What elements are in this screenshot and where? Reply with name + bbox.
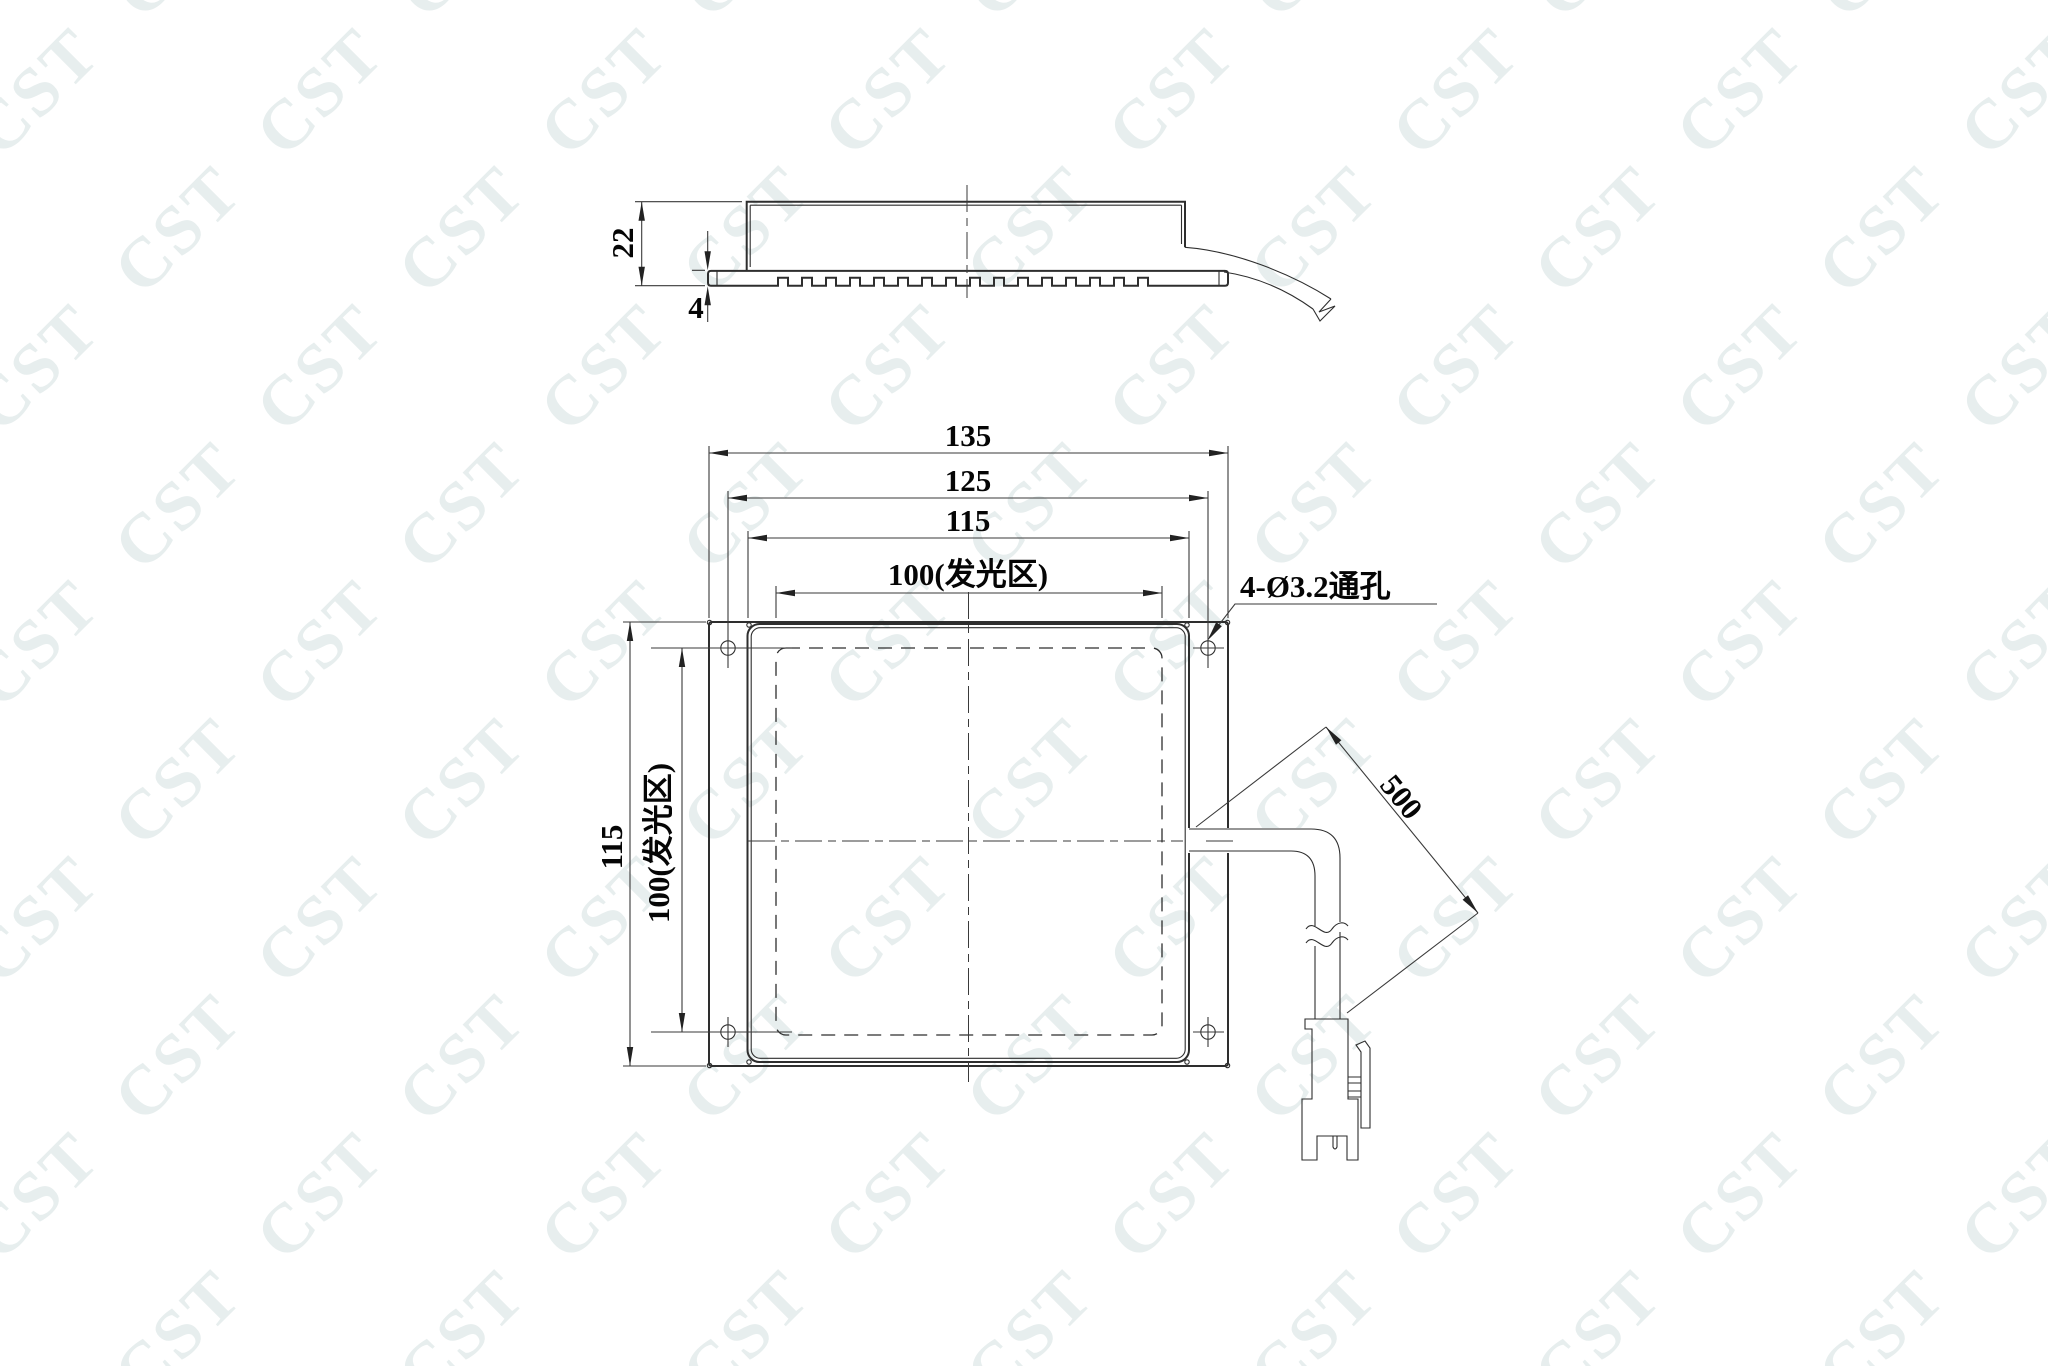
watermark-text: CST xyxy=(1662,566,1819,723)
watermark-text: CST xyxy=(1804,1256,1961,1366)
watermark-text: CST xyxy=(384,980,541,1137)
watermark-text: CST xyxy=(810,842,967,999)
watermark-text: CST xyxy=(384,0,541,33)
watermark-text: CST xyxy=(668,0,825,33)
watermark-text: CST xyxy=(242,842,399,999)
watermark-text: CST xyxy=(1378,14,1535,171)
dim-emitting-height-value: 100(发光区) xyxy=(641,763,676,923)
watermark-text: CST xyxy=(1236,428,1393,585)
watermark-text: CST xyxy=(1236,0,1393,33)
watermark-text: CST xyxy=(952,1256,1109,1366)
watermark-text: CST xyxy=(668,1256,825,1366)
watermark-text: CST xyxy=(100,980,257,1137)
watermark-text: CST xyxy=(0,14,115,171)
watermark-text: CST xyxy=(1662,842,1819,999)
connector-pin xyxy=(1333,1136,1337,1149)
watermark-text: CST xyxy=(0,290,115,447)
watermark-text: CST xyxy=(384,704,541,861)
cable-opening xyxy=(1186,828,1316,853)
watermark-text: CST xyxy=(100,1256,257,1366)
watermark-text: CST xyxy=(1236,1256,1393,1366)
watermark-text: CST xyxy=(384,1256,541,1366)
dim-panel-width-value: 115 xyxy=(946,503,991,538)
watermark-text: CST xyxy=(242,566,399,723)
watermark-text: CST xyxy=(1662,290,1819,447)
watermark-text: CST xyxy=(1520,152,1677,309)
watermark-text: CST xyxy=(242,290,399,447)
watermark-text: CST xyxy=(1378,1118,1535,1275)
watermark-text: CST xyxy=(1804,704,1961,861)
watermark-text: CST xyxy=(952,704,1109,861)
watermark-text: CST xyxy=(100,0,257,33)
watermark-text: CST xyxy=(1520,704,1677,861)
watermark-text: CST xyxy=(1804,152,1961,309)
watermark-text: CST xyxy=(526,290,683,447)
watermark-text: CST xyxy=(1946,14,2048,171)
watermark-text: CST xyxy=(1520,980,1677,1137)
watermark-text: CST xyxy=(952,0,1109,33)
dim-hole-spacing-value: 125 xyxy=(945,463,992,498)
watermark-text: CST xyxy=(100,428,257,585)
watermark-text: CST xyxy=(526,566,683,723)
dim-overall-height-value: 115 xyxy=(594,825,629,870)
dim-emitting-width-value: 100(发光区) xyxy=(888,557,1048,592)
watermark-text: CST xyxy=(100,704,257,861)
watermark-text: CST xyxy=(1236,152,1393,309)
watermark-text: CST xyxy=(1520,0,1677,33)
dim-overall-width-value: 135 xyxy=(945,418,992,453)
watermark-text: CST xyxy=(0,842,115,999)
watermark-text: CST xyxy=(1378,842,1535,999)
watermark-text: CST xyxy=(384,428,541,585)
dim-emitting-width: 100(发光区) xyxy=(776,557,1162,596)
technical-drawing: CSTCSTCSTCSTCSTCSTCSTCSTCSTCSTCSTCSTCSTC… xyxy=(0,0,2048,1366)
holes-label: 4-Ø3.2通孔 xyxy=(1240,569,1391,604)
watermark-text: CST xyxy=(1236,980,1393,1137)
dim-panel-width: 115 xyxy=(748,503,1189,541)
watermark-text: CST xyxy=(1804,980,1961,1137)
watermark-text: CST xyxy=(1520,1256,1677,1366)
watermark-text: CST xyxy=(526,14,683,171)
watermark-text: CST xyxy=(1946,1118,2048,1275)
watermark-text: CST xyxy=(242,14,399,171)
watermark-text: CST xyxy=(1520,428,1677,585)
watermark-text: CST xyxy=(1946,566,2048,723)
watermark-text: CST xyxy=(1804,428,1961,585)
watermark-text: CST xyxy=(0,566,115,723)
watermark-text: CST xyxy=(1662,14,1819,171)
watermark-text: CST xyxy=(810,14,967,171)
watermark-text: CST xyxy=(810,1118,967,1275)
dim-base-thickness-value: 4 xyxy=(688,290,704,325)
watermark-text: CST xyxy=(1804,0,1961,33)
watermark-text: CST xyxy=(1094,1118,1251,1275)
technical-drawing-page: CSTCSTCSTCSTCSTCSTCSTCSTCSTCSTCSTCSTCSTC… xyxy=(0,0,2048,1366)
watermark-text: CST xyxy=(242,1118,399,1275)
watermark-text: CST xyxy=(1946,290,2048,447)
watermark-text: CST xyxy=(526,1118,683,1275)
side-flange-outline xyxy=(708,271,1228,286)
watermark-text: CST xyxy=(810,290,967,447)
watermark-text: CST xyxy=(1946,842,2048,999)
watermark-text: CST xyxy=(1378,290,1535,447)
watermark-text: CST xyxy=(1662,1118,1819,1275)
dim-cable-length-value: 500 xyxy=(1373,768,1430,826)
holes-callout: 4-Ø3.2通孔 xyxy=(1208,569,1438,641)
watermark-text: CST xyxy=(668,704,825,861)
watermark-text: CST xyxy=(1378,566,1535,723)
dim-side-height-value: 22 xyxy=(605,228,640,259)
watermark-text: CST xyxy=(1094,290,1251,447)
watermark-text: CST xyxy=(100,152,257,309)
watermark-text: CST xyxy=(668,428,825,585)
watermark-text: CST xyxy=(1094,14,1251,171)
watermark-text: CST xyxy=(384,152,541,309)
watermark-text: CST xyxy=(0,1118,115,1275)
